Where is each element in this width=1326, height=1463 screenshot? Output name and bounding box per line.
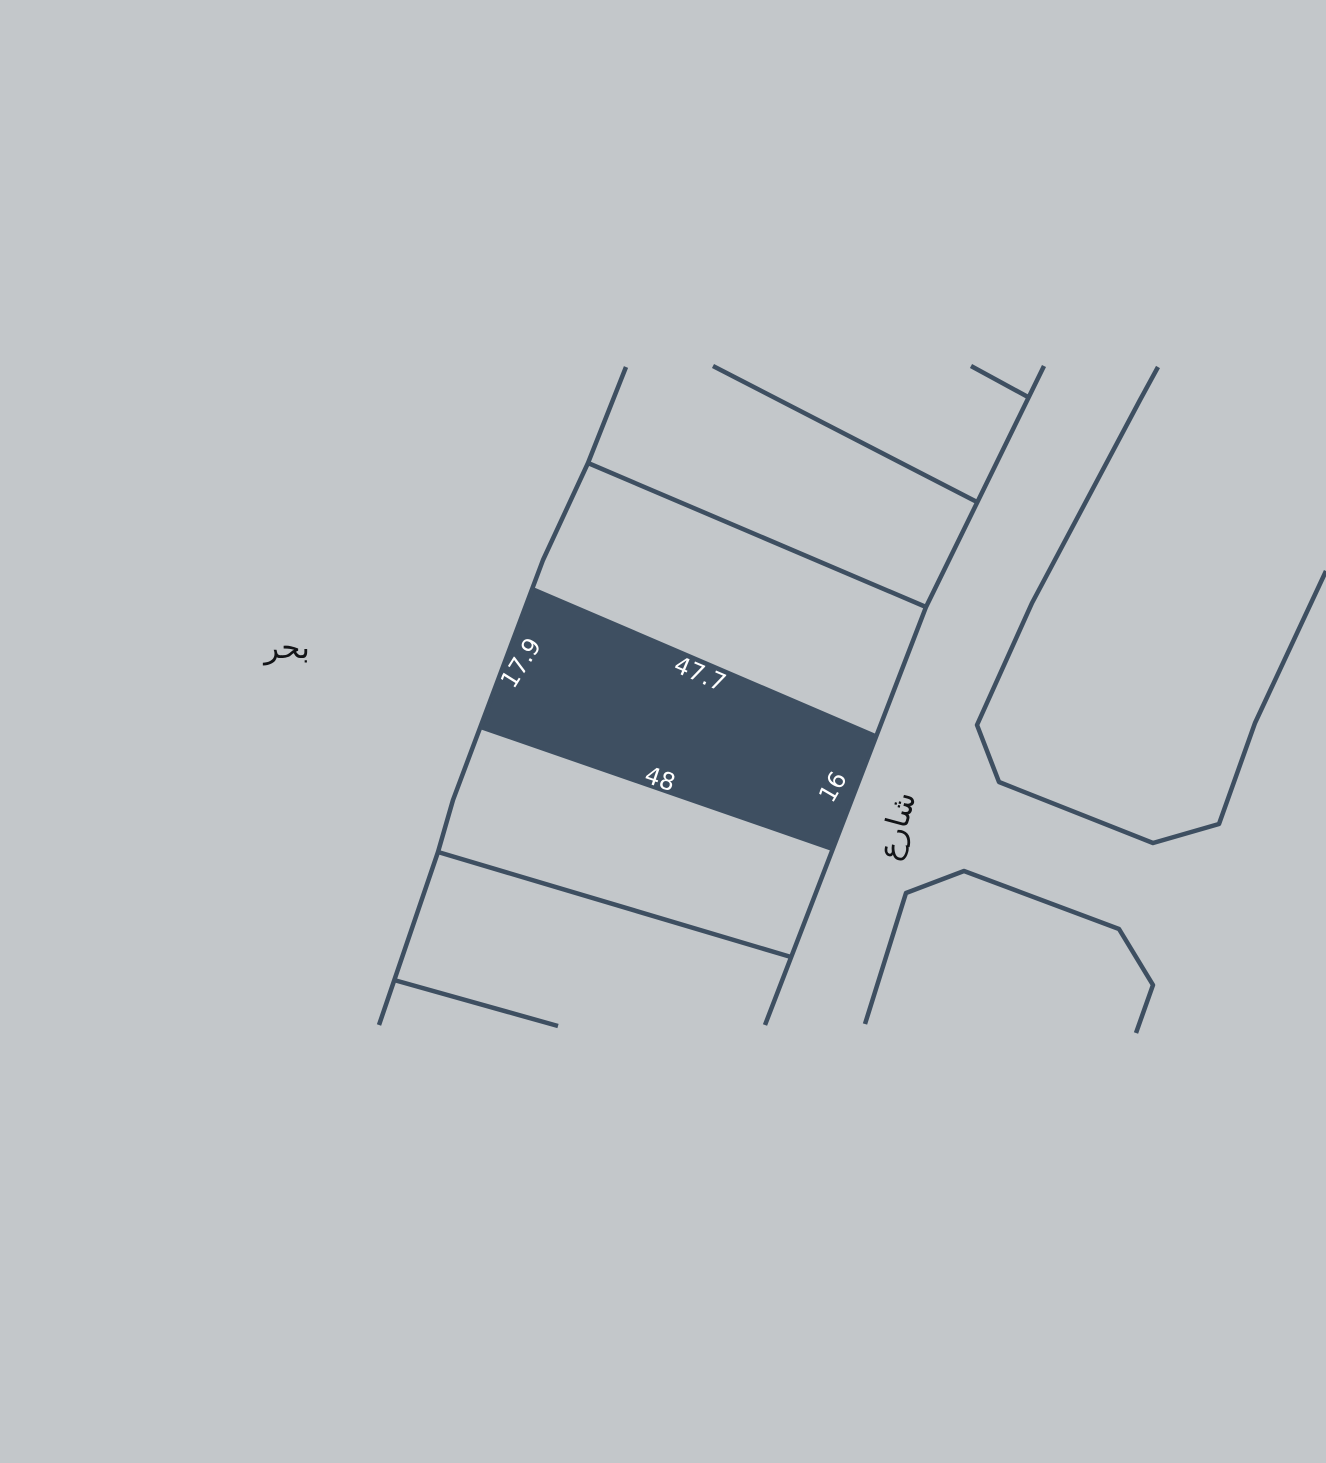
plot-map-svg: 17.9 47.7 48 16 بحر شارع <box>0 0 1326 1463</box>
map-canvas: 17.9 47.7 48 16 بحر شارع <box>0 0 1326 1463</box>
parcel-divider-line-upper <box>588 463 926 607</box>
east-block-outline-line <box>977 367 1326 843</box>
sea-label: بحر <box>262 630 310 666</box>
parcel-diagonal-line-top <box>713 366 977 502</box>
street-label: شارع <box>871 788 924 864</box>
parcel-divider-line-lower <box>438 852 791 957</box>
parcel-divider-line-bottom <box>394 980 558 1026</box>
southeast-block-outline-line <box>865 871 1153 1033</box>
highlighted-parcel[interactable] <box>480 588 876 850</box>
parcel-stub-line-top <box>971 366 1028 397</box>
